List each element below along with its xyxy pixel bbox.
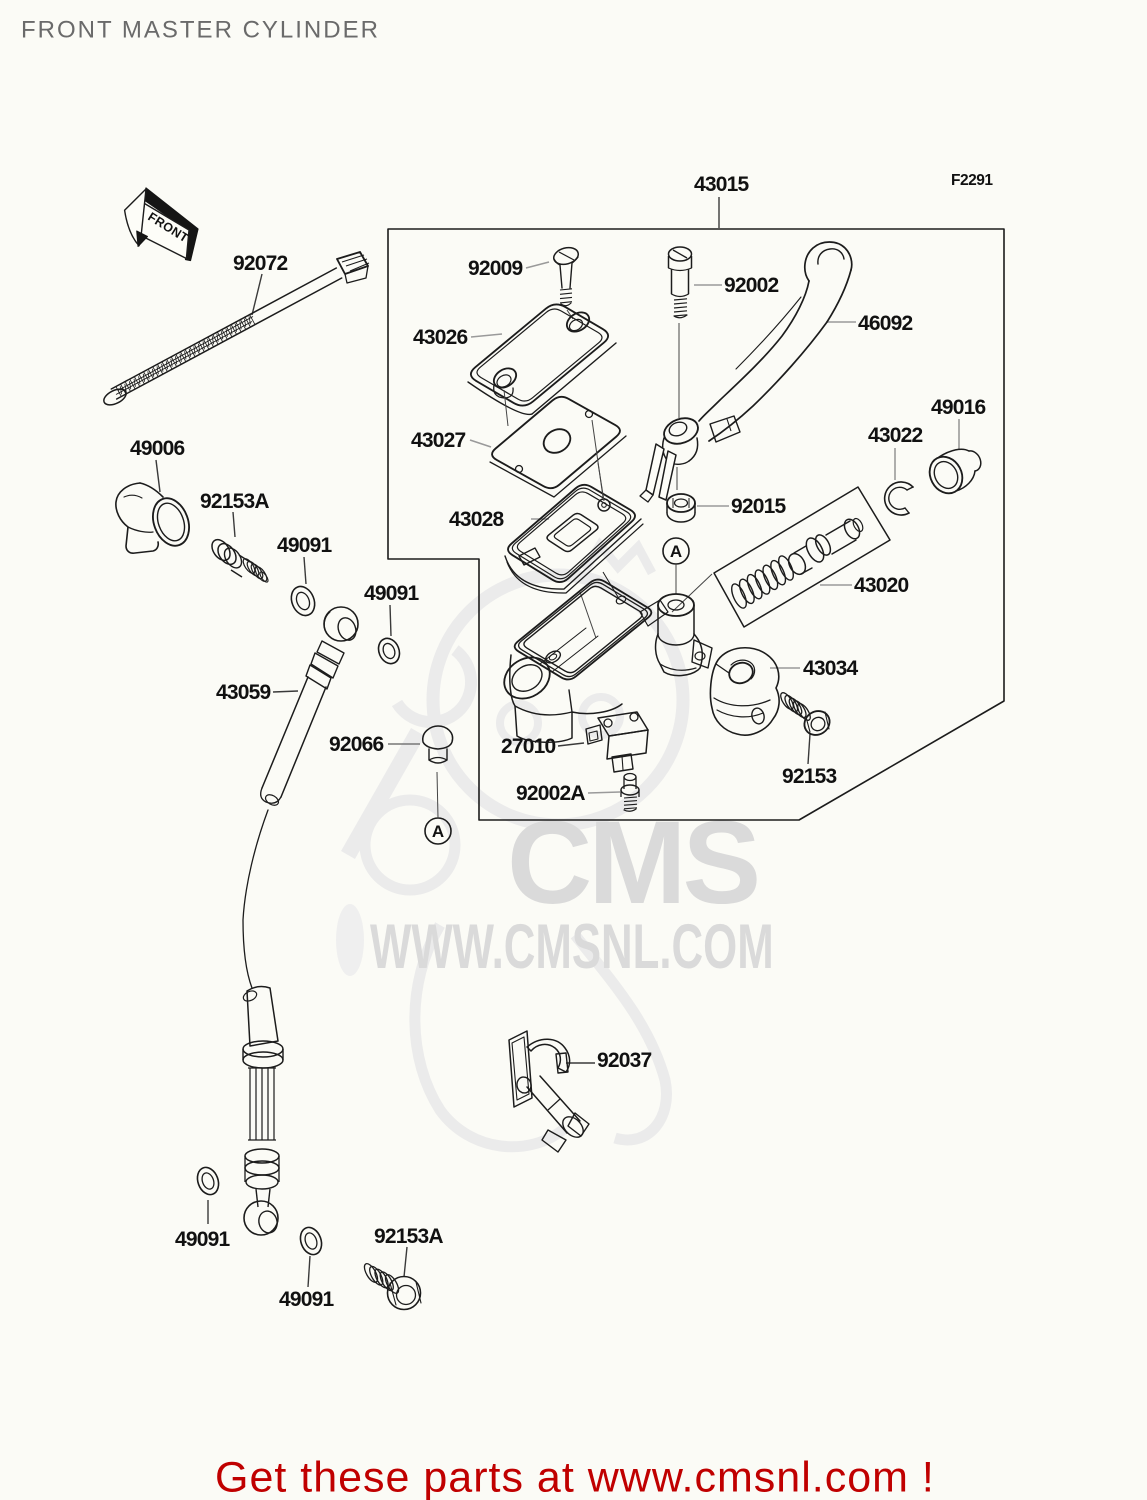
- svg-text:WWW.CMSNL.COM: WWW.CMSNL.COM: [370, 912, 774, 982]
- svg-text:92153A: 92153A: [200, 490, 269, 513]
- svg-text:43027: 43027: [411, 429, 466, 452]
- svg-text:92153A: 92153A: [374, 1225, 443, 1248]
- svg-text:92037: 92037: [597, 1049, 652, 1072]
- svg-text:92009: 92009: [468, 257, 523, 280]
- svg-text:49016: 49016: [931, 396, 986, 419]
- svg-text:43015: 43015: [694, 173, 750, 196]
- svg-text:49091: 49091: [364, 582, 420, 605]
- svg-text:92072: 92072: [233, 252, 288, 275]
- svg-text:43034: 43034: [803, 657, 859, 680]
- svg-text:92002: 92002: [724, 274, 779, 297]
- svg-text:27010: 27010: [501, 735, 556, 758]
- svg-text:92066: 92066: [329, 733, 384, 756]
- svg-text:A: A: [670, 542, 682, 561]
- svg-text:43059: 43059: [216, 681, 271, 704]
- svg-text:49091: 49091: [279, 1288, 335, 1311]
- svg-text:92002A: 92002A: [516, 782, 585, 805]
- svg-text:49091: 49091: [175, 1228, 231, 1251]
- svg-text:43022: 43022: [868, 424, 923, 447]
- svg-text:49006: 49006: [130, 437, 185, 460]
- svg-text:43028: 43028: [449, 508, 505, 531]
- svg-text:92015: 92015: [731, 495, 787, 518]
- svg-text:CMS: CMS: [507, 797, 758, 929]
- svg-text:Get these parts at www.cmsnl.c: Get these parts at www.cmsnl.com !: [215, 1454, 935, 1500]
- svg-text:49091: 49091: [277, 534, 333, 557]
- svg-text:43026: 43026: [413, 326, 468, 349]
- svg-text:F2291: F2291: [951, 172, 993, 189]
- svg-text:43020: 43020: [854, 574, 909, 597]
- svg-text:46092: 46092: [858, 312, 913, 335]
- svg-text:FRONT MASTER CYLINDER: FRONT MASTER CYLINDER: [21, 17, 380, 44]
- svg-text:92153: 92153: [782, 765, 837, 788]
- svg-text:A: A: [432, 822, 444, 841]
